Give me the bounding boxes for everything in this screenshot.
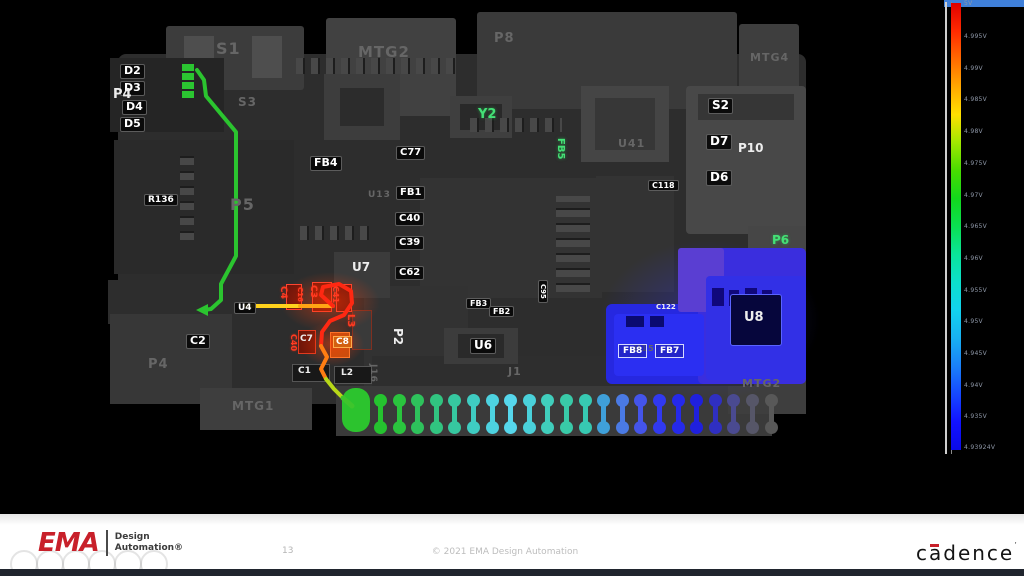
ref-label-c3: C3 bbox=[308, 285, 318, 298]
ref-label-mtg2: MTG2 bbox=[358, 44, 410, 61]
ref-label-c2: C2 bbox=[186, 334, 210, 349]
ref-label-d7: D7 bbox=[706, 134, 732, 150]
colorbar-tick-label: 4.955V bbox=[964, 287, 987, 294]
ref-label-fb3: FB3 bbox=[466, 298, 491, 309]
ref-label-c40: C40 bbox=[395, 212, 424, 226]
ref-label-u8: U8 bbox=[744, 311, 764, 326]
colorbar-tick-label: 4.975V bbox=[964, 160, 987, 167]
ref-label-c122: C122 bbox=[656, 303, 676, 311]
colorbar-tick-label: 4.95V bbox=[964, 318, 983, 325]
ref-label-d2: D2 bbox=[120, 64, 145, 79]
ref-label-p8: P8 bbox=[494, 32, 515, 47]
ref-label-l3: L3 bbox=[345, 314, 357, 327]
ref-label-fb5: FB5 bbox=[555, 138, 567, 159]
ref-label-c95: C95 bbox=[538, 280, 548, 303]
ref-label-fb7: FB7 bbox=[655, 344, 684, 358]
colorbar-labels: 5V4.995V4.99V4.985V4.98V4.975V4.97V4.965… bbox=[962, 0, 1024, 460]
colorbar-tick-label: 4.99V bbox=[964, 65, 983, 72]
colorbar-tick-label: 4.985V bbox=[964, 96, 987, 103]
colorbar-tick-label: 4.96V bbox=[964, 255, 983, 262]
ref-label-s3: S3 bbox=[238, 96, 257, 110]
ref-label-u4: U4 bbox=[234, 302, 256, 314]
ema-wordmark: EMA bbox=[38, 528, 99, 558]
ema-tagline-line1: Design bbox=[115, 532, 150, 542]
ref-label-c16: C16 bbox=[296, 287, 304, 302]
colorbar-tick-label: 4.94V bbox=[964, 382, 983, 389]
colorbar-tick-label: 4.945V bbox=[964, 350, 987, 357]
ref-label-s2: S2 bbox=[708, 98, 733, 114]
ema-tagline: Design Automation® bbox=[115, 532, 183, 554]
ref-label-j1: J1 bbox=[508, 366, 522, 379]
ref-label-c7: C7 bbox=[300, 334, 313, 344]
cadence-macron bbox=[930, 544, 939, 547]
ref-label-d4: D4 bbox=[122, 100, 147, 115]
colorbar-tick-label: 4.98V bbox=[964, 128, 983, 135]
ref-label-fb8: FB8 bbox=[618, 344, 647, 358]
ref-label-c62: C62 bbox=[395, 266, 424, 280]
ref-label-c77: C77 bbox=[396, 146, 425, 160]
ref-label-p6: P6 bbox=[772, 234, 789, 248]
colorbar-max-label: 5V bbox=[964, 0, 973, 7]
reference-designators: S1MTG2P8MTG4S3P5U41U13P4MTG1J1MTG2J16U15… bbox=[0, 0, 1024, 576]
ref-label-fb1: FB1 bbox=[396, 186, 425, 200]
colorbar-tick-label: 4.97V bbox=[964, 192, 983, 199]
ref-label-fb2: FB2 bbox=[489, 306, 514, 317]
colorbar-tick-label: 4.995V bbox=[964, 33, 987, 40]
ref-label-u7: U7 bbox=[352, 261, 370, 275]
ref-label-mtg1: MTG1 bbox=[232, 400, 274, 414]
page-number: 13 bbox=[282, 546, 293, 556]
colorbar-min-label: 4.93924V bbox=[964, 444, 995, 451]
ref-label-mtg2: MTG2 bbox=[742, 378, 781, 391]
ema-divider bbox=[106, 530, 108, 556]
copyright-text: © 2021 EMA Design Automation bbox=[375, 547, 635, 557]
ref-label-y2: Y2 bbox=[478, 108, 496, 123]
ref-label-p10: P10 bbox=[738, 142, 764, 156]
ref-label-c39: C39 bbox=[395, 236, 424, 250]
ref-label-mtg4: MTG4 bbox=[750, 52, 789, 65]
ref-label-u6: U6 bbox=[470, 338, 496, 354]
ref-label-c40: C40 bbox=[289, 334, 298, 351]
ref-label-u13: U13 bbox=[368, 190, 391, 200]
ref-label-p2: P2 bbox=[390, 328, 404, 345]
ref-label-c41: C41 bbox=[331, 286, 340, 303]
ref-label-l2: L2 bbox=[341, 368, 353, 378]
ref-label-r136: R136 bbox=[144, 194, 178, 206]
cadence-trademark: ’ bbox=[1014, 541, 1019, 550]
colorbar-tick-label: 4.965V bbox=[964, 223, 987, 230]
ref-label-c8: C8 bbox=[333, 336, 352, 348]
ref-label-j16: J16 bbox=[368, 364, 378, 383]
ref-label-p4: P4 bbox=[148, 358, 169, 373]
ref-label-d5: D5 bbox=[120, 117, 145, 132]
ref-label-c118: C118 bbox=[648, 180, 679, 191]
ref-label-fb4: FB4 bbox=[310, 156, 342, 171]
bottom-bar bbox=[0, 569, 1024, 576]
voltage-colorbar bbox=[951, 3, 961, 450]
cadence-logo: cadence’ bbox=[916, 541, 1019, 565]
ref-label-c4: C4 bbox=[278, 286, 288, 299]
ref-label-c1: C1 bbox=[298, 366, 311, 376]
ema-tagline-line2: Automation® bbox=[115, 543, 183, 553]
ref-label-u41: U41 bbox=[618, 138, 645, 151]
video-frame: S1MTG2P8MTG4S3P5U41U13P4MTG1J1MTG2J16U15… bbox=[0, 0, 1024, 576]
colorbar-tick-label: 4.935V bbox=[964, 413, 987, 420]
ref-label-d6: D6 bbox=[706, 170, 732, 186]
ref-label-s1: S1 bbox=[216, 40, 241, 58]
ema-logo: EMA Design Automation® bbox=[38, 528, 183, 558]
ref-label-p5: P5 bbox=[230, 196, 255, 214]
